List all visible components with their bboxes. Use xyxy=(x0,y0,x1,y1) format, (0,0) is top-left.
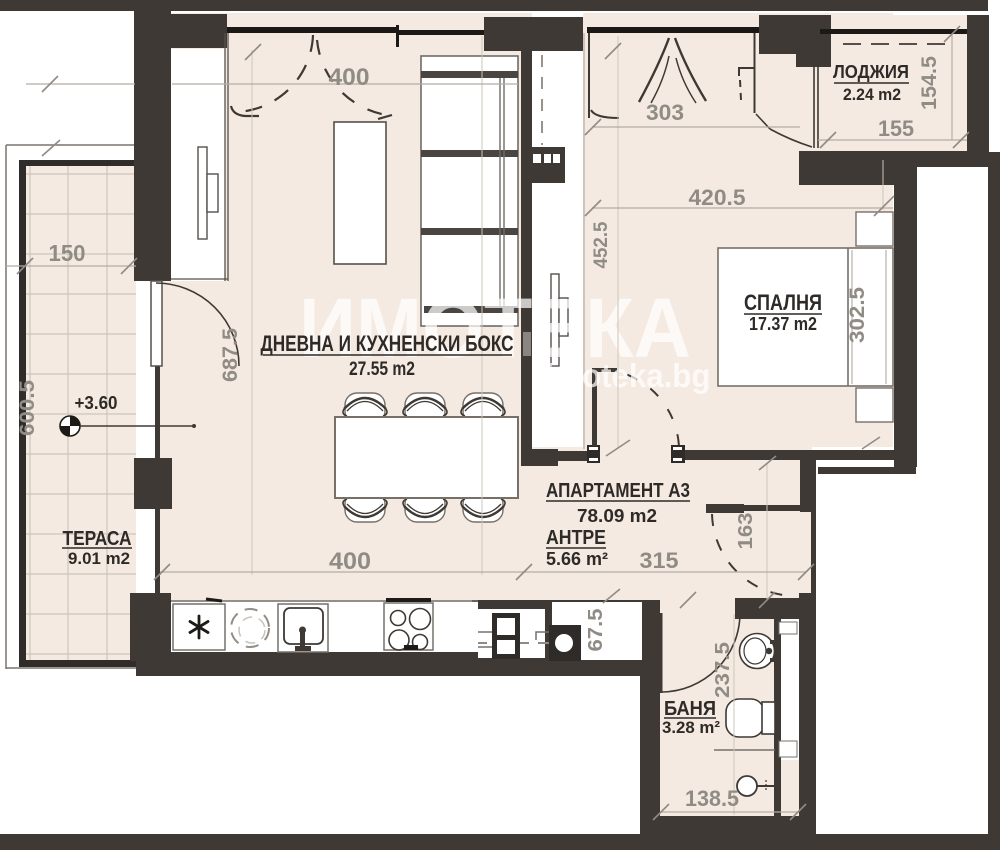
svg-text:17.37 m2: 17.37 m2 xyxy=(749,314,817,334)
svg-text:303: 303 xyxy=(646,100,684,125)
svg-text:3.28 m²: 3.28 m² xyxy=(662,718,720,737)
svg-text:БАНЯ: БАНЯ xyxy=(664,698,716,720)
svg-text:+3.60: +3.60 xyxy=(75,393,118,413)
svg-text:452.5: 452.5 xyxy=(591,221,612,268)
svg-text:АНТРЕ: АНТРЕ xyxy=(546,527,606,549)
svg-text:imoteka.bg: imoteka.bg xyxy=(546,357,711,394)
svg-text:155: 155 xyxy=(878,116,914,141)
svg-text:302.5: 302.5 xyxy=(846,287,869,343)
svg-text:400: 400 xyxy=(329,64,370,91)
svg-text:27.55 m2: 27.55 m2 xyxy=(349,359,415,380)
svg-text:154.5: 154.5 xyxy=(918,56,941,110)
svg-text:СПАЛНЯ: СПАЛНЯ xyxy=(744,290,822,315)
svg-text:150: 150 xyxy=(49,240,86,266)
svg-text:600.5: 600.5 xyxy=(16,380,39,436)
svg-text:163: 163 xyxy=(735,513,757,550)
svg-text:315: 315 xyxy=(640,548,679,573)
svg-text:237.5: 237.5 xyxy=(712,642,734,698)
svg-text:420.5: 420.5 xyxy=(689,185,746,210)
svg-text:ДНЕВНА И КУХНЕНСКИ БОКС: ДНЕВНА И КУХНЕНСКИ БОКС xyxy=(261,331,514,356)
svg-text:9.01 m2: 9.01 m2 xyxy=(68,549,130,568)
svg-text:ТЕРАСА: ТЕРАСА xyxy=(63,528,132,550)
svg-text:400: 400 xyxy=(329,548,371,575)
svg-text:687.5: 687.5 xyxy=(219,328,242,382)
svg-text:5.66 m²: 5.66 m² xyxy=(546,549,608,569)
svg-text:67.5: 67.5 xyxy=(585,609,607,652)
svg-text:2.24 m2: 2.24 m2 xyxy=(843,85,901,104)
svg-text:78.09 m2: 78.09 m2 xyxy=(577,506,657,526)
svg-text:138.5: 138.5 xyxy=(685,786,739,811)
svg-text:ЛОДЖИЯ: ЛОДЖИЯ xyxy=(833,62,909,82)
svg-text:АПАРТАМЕНТ А3: АПАРТАМЕНТ А3 xyxy=(546,480,690,502)
